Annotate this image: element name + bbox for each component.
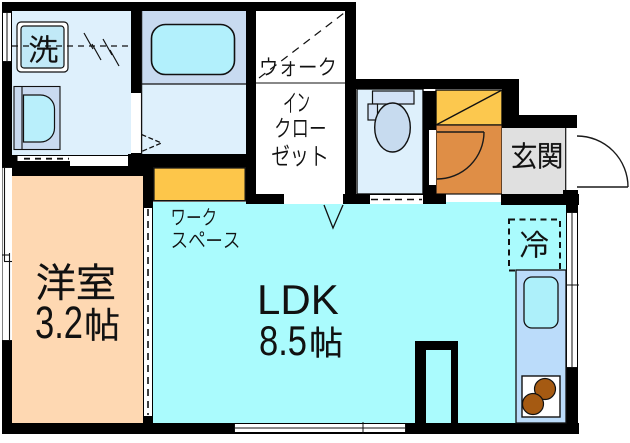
svg-text:LDK: LDK bbox=[257, 276, 339, 323]
svg-text:8.5: 8.5 bbox=[259, 317, 307, 364]
svg-text:3.2: 3.2 bbox=[35, 297, 83, 348]
